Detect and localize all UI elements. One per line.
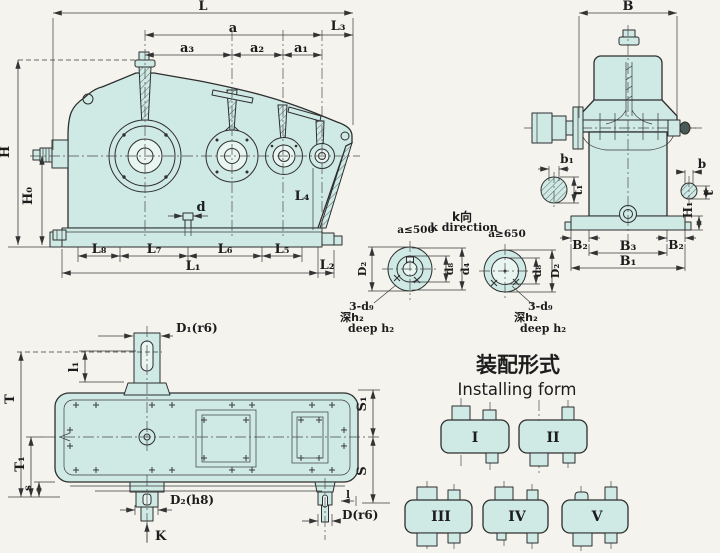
condition-left: a≤500 [397, 224, 435, 236]
dim-label-a3: a₃ [180, 41, 194, 56]
dim-label-D2-left: D₂ [356, 262, 369, 277]
key-section-right [676, 170, 710, 206]
form-icon-5: V [562, 481, 628, 551]
eyebolt-knob [139, 52, 149, 60]
dim-label-L2: L₂ [320, 258, 335, 273]
form-icon-4: IV [483, 481, 548, 549]
dim-label-t: t [702, 190, 716, 196]
dim-label-T1: T₁ [13, 456, 28, 471]
dim-label-L4: L₄ [295, 189, 310, 204]
condition-right: a≥650 [488, 228, 526, 240]
dim-label-s: s [23, 485, 34, 491]
dim-label-B2-right: B₂ [668, 238, 683, 252]
dim-label-H: H [0, 146, 13, 158]
dim-label-L7: L₇ [147, 242, 162, 257]
form-label-1: I [472, 430, 479, 446]
dim-label-a: a [229, 21, 238, 36]
dim-label-d: d [196, 200, 205, 215]
dim-label-B1: B₁ [620, 254, 637, 269]
dim-label-H1: H₁ [681, 202, 695, 219]
dim-label-d8-right: d₈ [531, 265, 544, 278]
dim-label-L1: L₁ [186, 259, 201, 274]
form-icon-2: II [519, 400, 587, 474]
dim-label-D2h8: D₂(h8) [170, 493, 214, 507]
plan-view: D₁(r6) l₁ T T₁ s S₁ S D₂(h8) K l D(r6) [3, 321, 390, 545]
form-label-2: II [546, 430, 559, 446]
dim-label-D: D(r6) [342, 508, 378, 522]
dim-label-L: L [198, 0, 207, 14]
gear-reducer-dimension-drawing: L a L₃ a₃ a₂ a₁ H H₀ d L₄ L₈ L₇ L₆ L₅ L₁… [0, 0, 720, 553]
dim-label-a1: a₁ [294, 41, 308, 56]
dim-label-H0: H₀ [21, 187, 36, 205]
dim-label-l: l [346, 490, 350, 501]
dim-label-L3: L₃ [331, 19, 346, 34]
dim-label-B2-left: B₂ [572, 238, 587, 252]
dim-label-T: T [3, 394, 18, 404]
dim-label-l1: l₁ [67, 362, 82, 373]
bearing-boss-2 [206, 130, 258, 182]
installing-title-cn: 装配形式 [476, 353, 560, 377]
installing-title-en: Installing form [458, 380, 577, 399]
shaft-end-detail-right [479, 244, 556, 304]
form-icon-3: III [405, 481, 472, 552]
dim-label-L5: L₅ [275, 242, 290, 257]
dim-label-D2-right: D₂ [549, 264, 562, 279]
k-direction-view: k向 k direction a≤500 a≥650 D₂ d₈ d₄ 3-d₉… [340, 209, 566, 335]
form-label-4: IV [508, 509, 527, 525]
form-icon-1: I [441, 398, 509, 472]
installing-forms: 装配形式 Installing form I II III IV [405, 353, 628, 552]
drawing-canvas: L a L₃ a₃ a₂ a₁ H H₀ d L₄ L₈ L₇ L₆ L₅ L₁… [0, 0, 720, 553]
dim-label-L8: L₈ [92, 242, 107, 257]
depth-note-en-right: deep h₂ [520, 322, 566, 335]
dim-label-B: B [623, 0, 634, 14]
dim-label-d8-left: d₈ [443, 263, 456, 276]
output-shaft-end [668, 120, 696, 136]
dim-label-S1: S₁ [355, 396, 370, 411]
output-shaft-plan [315, 478, 335, 540]
dim-label-D1: D₁(r6) [176, 321, 218, 335]
dim-label-b1: b₁ [560, 152, 574, 166]
dim-label-L6: L₆ [218, 242, 233, 257]
form-label-3: III [431, 509, 451, 525]
dim-label-d4: d₄ [459, 263, 472, 276]
left-foundation-bolt [53, 230, 66, 240]
front-view: L a L₃ a₃ a₂ a₁ H H₀ d L₄ L₈ L₇ L₆ L₅ L₁… [0, 0, 360, 278]
depth-note-en-left: deep h₂ [348, 322, 394, 335]
input-shaft-coupling [532, 107, 583, 149]
left-flange-lug [52, 140, 68, 168]
housing-plan [55, 393, 358, 482]
dim-label-B3: B₃ [620, 239, 637, 254]
k-view-letter: K [155, 529, 167, 544]
right-bolt-head [334, 236, 342, 245]
dim-label-S: S [355, 466, 370, 475]
right-foot [322, 233, 334, 245]
dim-label-t1: t₁ [571, 185, 585, 196]
dim-label-a2: a₂ [250, 41, 264, 56]
vent-cap [619, 37, 639, 45]
side-view: B b₁ t₁ b t H₁ B₂ B₂ B₃ B₁ [524, 0, 716, 271]
dim-label-b: b [698, 157, 706, 171]
form-label-5: V [591, 509, 604, 525]
